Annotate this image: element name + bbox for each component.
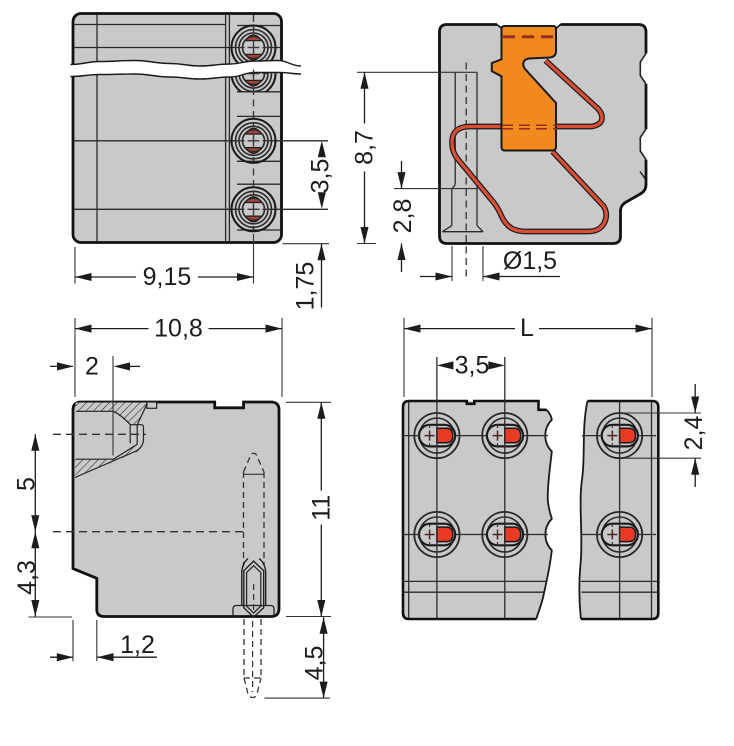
svg-text:11: 11	[307, 495, 335, 521]
svg-text:1,2: 1,2	[120, 631, 155, 659]
svg-text:5: 5	[13, 477, 41, 491]
svg-text:2,4: 2,4	[680, 416, 708, 451]
svg-text:Ø1,5: Ø1,5	[503, 247, 557, 275]
svg-text:2: 2	[85, 353, 99, 381]
svg-text:8,7: 8,7	[351, 130, 379, 165]
svg-text:1,75: 1,75	[292, 262, 320, 311]
svg-text:3,5: 3,5	[307, 159, 335, 194]
svg-text:4,3: 4,3	[13, 560, 41, 595]
svg-text:2,8: 2,8	[389, 199, 417, 234]
svg-text:10,8: 10,8	[154, 315, 203, 343]
svg-text:9,15: 9,15	[143, 263, 192, 291]
svg-text:3,5: 3,5	[455, 351, 490, 379]
svg-text:L: L	[520, 314, 534, 342]
svg-text:4,5: 4,5	[301, 646, 329, 681]
